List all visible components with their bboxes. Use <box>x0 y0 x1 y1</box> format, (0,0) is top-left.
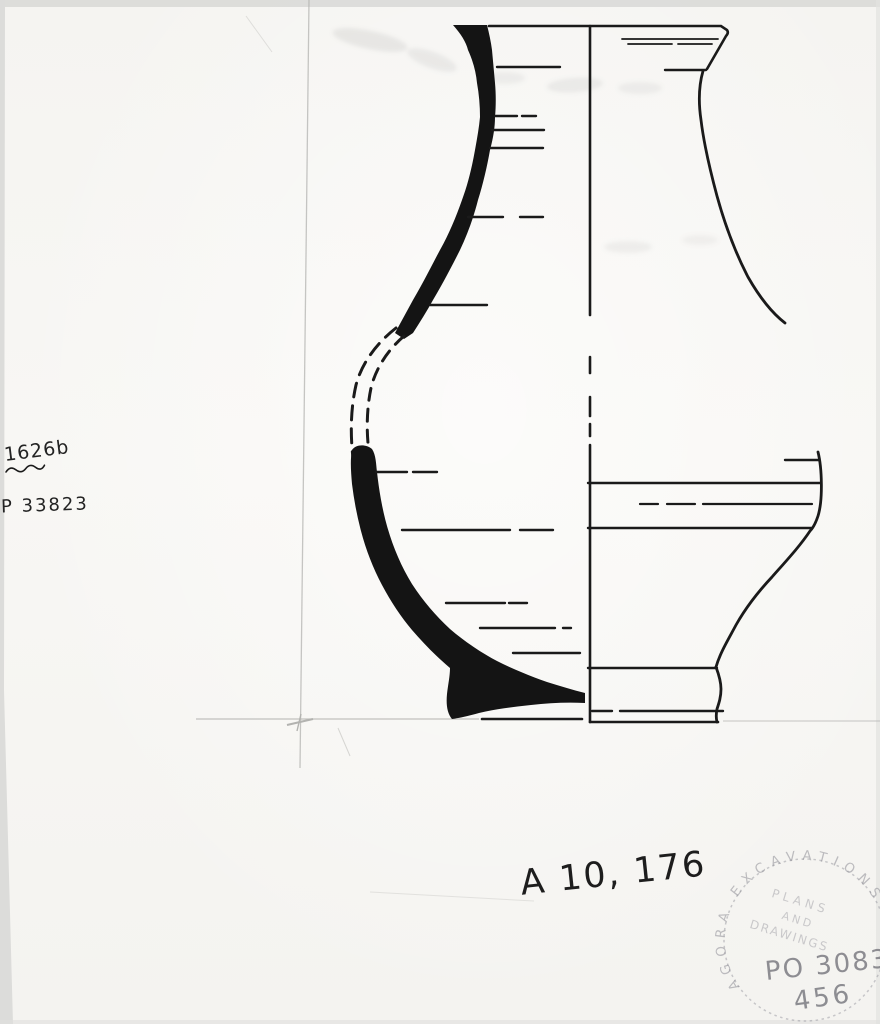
squiggle-underline <box>6 464 45 474</box>
shoulder-band-lines <box>588 483 820 528</box>
pencil-stray-stroke <box>338 728 350 756</box>
rim-outline <box>489 26 728 70</box>
scanned-drawing-page: AGORA EXCAVATIONS PLANS AND DRAWINGS PO … <box>0 0 880 1024</box>
inventory-number-annotation: P 33823 <box>1 493 90 517</box>
neck-profile-right <box>699 71 785 323</box>
lower-body-profile-right <box>716 452 821 722</box>
paper-top-edge <box>0 0 880 7</box>
stamp-center-line1: PLANS <box>770 886 831 917</box>
preserved-fragment-lower <box>351 445 585 719</box>
paper-bottom-edge <box>0 1020 880 1024</box>
paper-right-edge <box>876 0 880 1024</box>
vessel-drawing <box>351 25 822 722</box>
graphite-smudges <box>331 23 718 253</box>
pottery-profile-drawing: AGORA EXCAVATIONS PLANS AND DRAWINGS PO … <box>0 0 880 1024</box>
foot-lines <box>588 668 723 722</box>
faint-crease-line <box>370 892 534 901</box>
paper-crease <box>246 16 272 52</box>
tracing-paper-edge <box>300 0 309 768</box>
stamp-center-text: PLANS AND DRAWINGS <box>748 883 841 955</box>
archive-stamp: AGORA EXCAVATIONS PLANS AND DRAWINGS PO … <box>713 848 880 1021</box>
pencil-guides <box>196 0 880 901</box>
preserved-fragment-upper <box>395 25 496 339</box>
